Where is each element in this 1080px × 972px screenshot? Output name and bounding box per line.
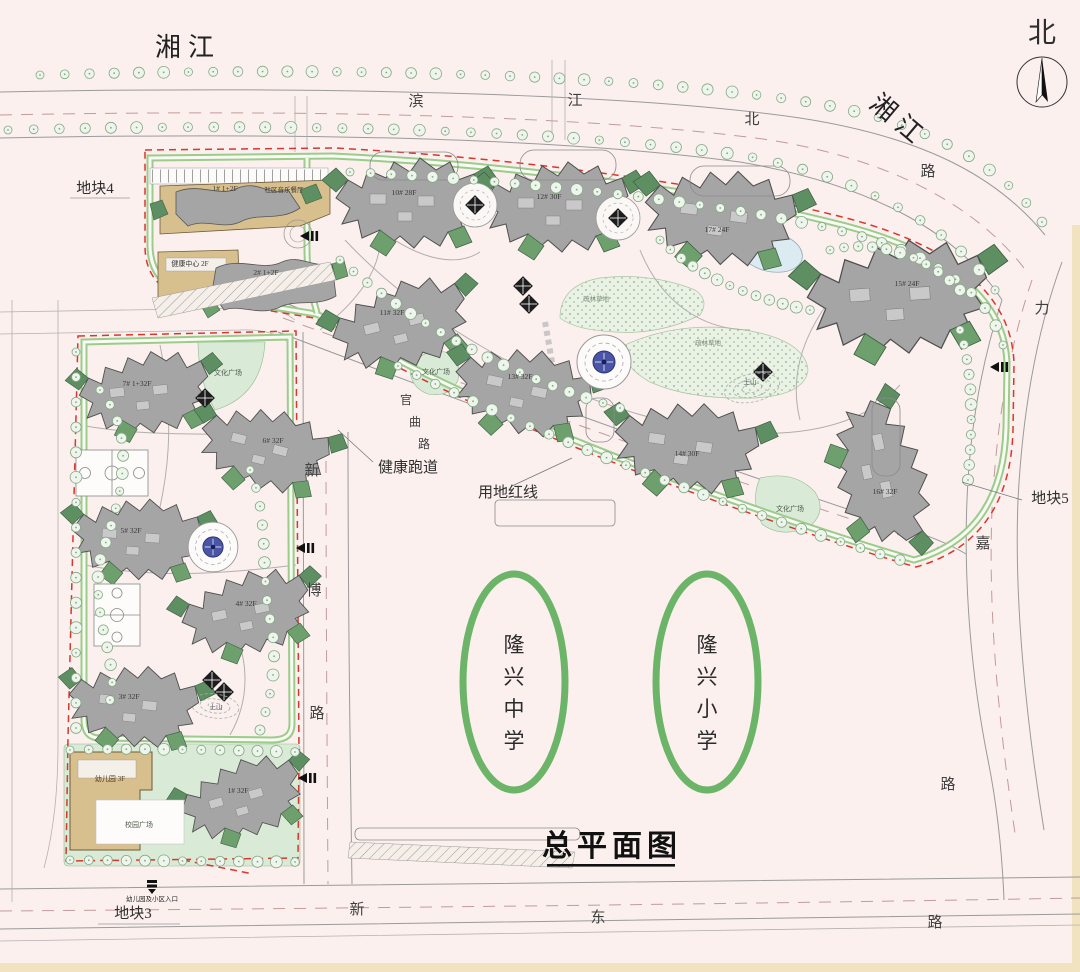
river-label-left: 湘江 — [155, 33, 221, 62]
campus-plaza-label: 校园广场 — [125, 820, 153, 829]
site-plan-drawing: 北 湘江 湘江 滨 江 北 路 力 嘉 路 新 博 路 新 东 路 官 曲 路 … — [0, 0, 1080, 972]
svg-text:江: 江 — [567, 92, 582, 109]
svg-text:路: 路 — [920, 163, 935, 180]
svg-text:6# 32F: 6# 32F — [262, 436, 283, 445]
culture-plaza-2-label: 文化广场 — [422, 367, 450, 376]
plot5-label: 地块5 — [1031, 490, 1069, 507]
plot4-label: 地块4 — [76, 180, 114, 197]
svg-text:5# 32F: 5# 32F — [120, 526, 141, 535]
svg-text:7# 1+32F: 7# 1+32F — [122, 379, 151, 388]
svg-text:1# 1+2F: 1# 1+2F — [212, 184, 237, 193]
health-center-label: 健康中心 2F — [171, 259, 208, 268]
culture-plaza-3-label: 文化广场 — [776, 504, 804, 513]
svg-text:学: 学 — [504, 729, 525, 753]
svg-text:力: 力 — [1034, 300, 1049, 317]
kindergarten-label: 幼儿园 3F — [95, 774, 125, 783]
earth-hill-2-label: 土山 — [210, 702, 223, 711]
svg-text:小: 小 — [697, 697, 718, 721]
scan-edge-right — [1072, 225, 1080, 972]
health-track-label: 健康跑道 — [378, 459, 438, 476]
svg-text:15# 24F: 15# 24F — [895, 279, 920, 288]
page-title: 总平面图 — [542, 830, 682, 863]
scan-edge-bottom — [0, 963, 1080, 972]
basketball-court-1 — [76, 450, 148, 496]
svg-text:17# 24F: 17# 24F — [705, 225, 730, 234]
west-fountain — [188, 522, 238, 572]
svg-text:2# 1+2F: 2# 1+2F — [253, 268, 278, 277]
svg-text:东: 东 — [590, 909, 605, 926]
plot3-label: 地块3 — [114, 905, 152, 922]
svg-text:14# 30F: 14# 30F — [675, 449, 700, 458]
svg-text:11# 32F: 11# 32F — [380, 308, 405, 317]
svg-text:滨: 滨 — [408, 93, 423, 110]
svg-text:路: 路 — [418, 436, 430, 451]
svg-text:北: 北 — [744, 111, 759, 128]
svg-text:路: 路 — [309, 705, 324, 722]
svg-text:兴: 兴 — [504, 665, 525, 689]
svg-text:隆: 隆 — [697, 633, 718, 657]
svg-text:新: 新 — [349, 901, 364, 918]
svg-text:13# 32F: 13# 32F — [508, 372, 533, 381]
lawn-1-label: 疏林草地 — [583, 294, 610, 303]
svg-text:4# 32F: 4# 32F — [235, 599, 256, 608]
svg-text:路: 路 — [927, 914, 942, 931]
svg-text:新: 新 — [304, 462, 319, 479]
svg-text:博: 博 — [306, 582, 321, 599]
svg-text:嘉: 嘉 — [975, 535, 990, 552]
central-fountain — [577, 335, 631, 389]
site-plan-canvas: 北 湘江 湘江 滨 江 北 路 力 嘉 路 新 博 路 新 东 路 官 曲 路 … — [0, 0, 1080, 972]
red-line-label: 用地红线 — [478, 484, 538, 501]
svg-text:路: 路 — [940, 776, 955, 793]
svg-text:兴: 兴 — [697, 665, 718, 689]
lawn-2-label: 疏林草地 — [695, 338, 722, 347]
svg-text:隆: 隆 — [504, 633, 525, 657]
svg-text:12# 30F: 12# 30F — [537, 192, 562, 201]
svg-text:中: 中 — [504, 697, 525, 721]
svg-text:10# 28F: 10# 28F — [392, 188, 417, 197]
earth-hill-1-label: 土山 — [744, 377, 757, 386]
kindergarten-entrance-label: 幼儿园及小区入口 — [126, 894, 178, 903]
svg-text:3# 32F: 3# 32F — [118, 692, 139, 701]
svg-text:学: 学 — [697, 729, 718, 753]
title-underline — [547, 864, 675, 867]
svg-text:16# 32F: 16# 32F — [873, 487, 898, 496]
svg-text:曲: 曲 — [409, 415, 421, 429]
svg-text:官: 官 — [400, 392, 412, 407]
north-label: 北 — [1028, 18, 1056, 49]
svg-text:1# 32F: 1# 32F — [227, 786, 248, 795]
community-restaurant-label: 社区音乐餐厅 — [265, 185, 305, 194]
culture-plaza-1-label: 文化广场 — [214, 368, 242, 377]
